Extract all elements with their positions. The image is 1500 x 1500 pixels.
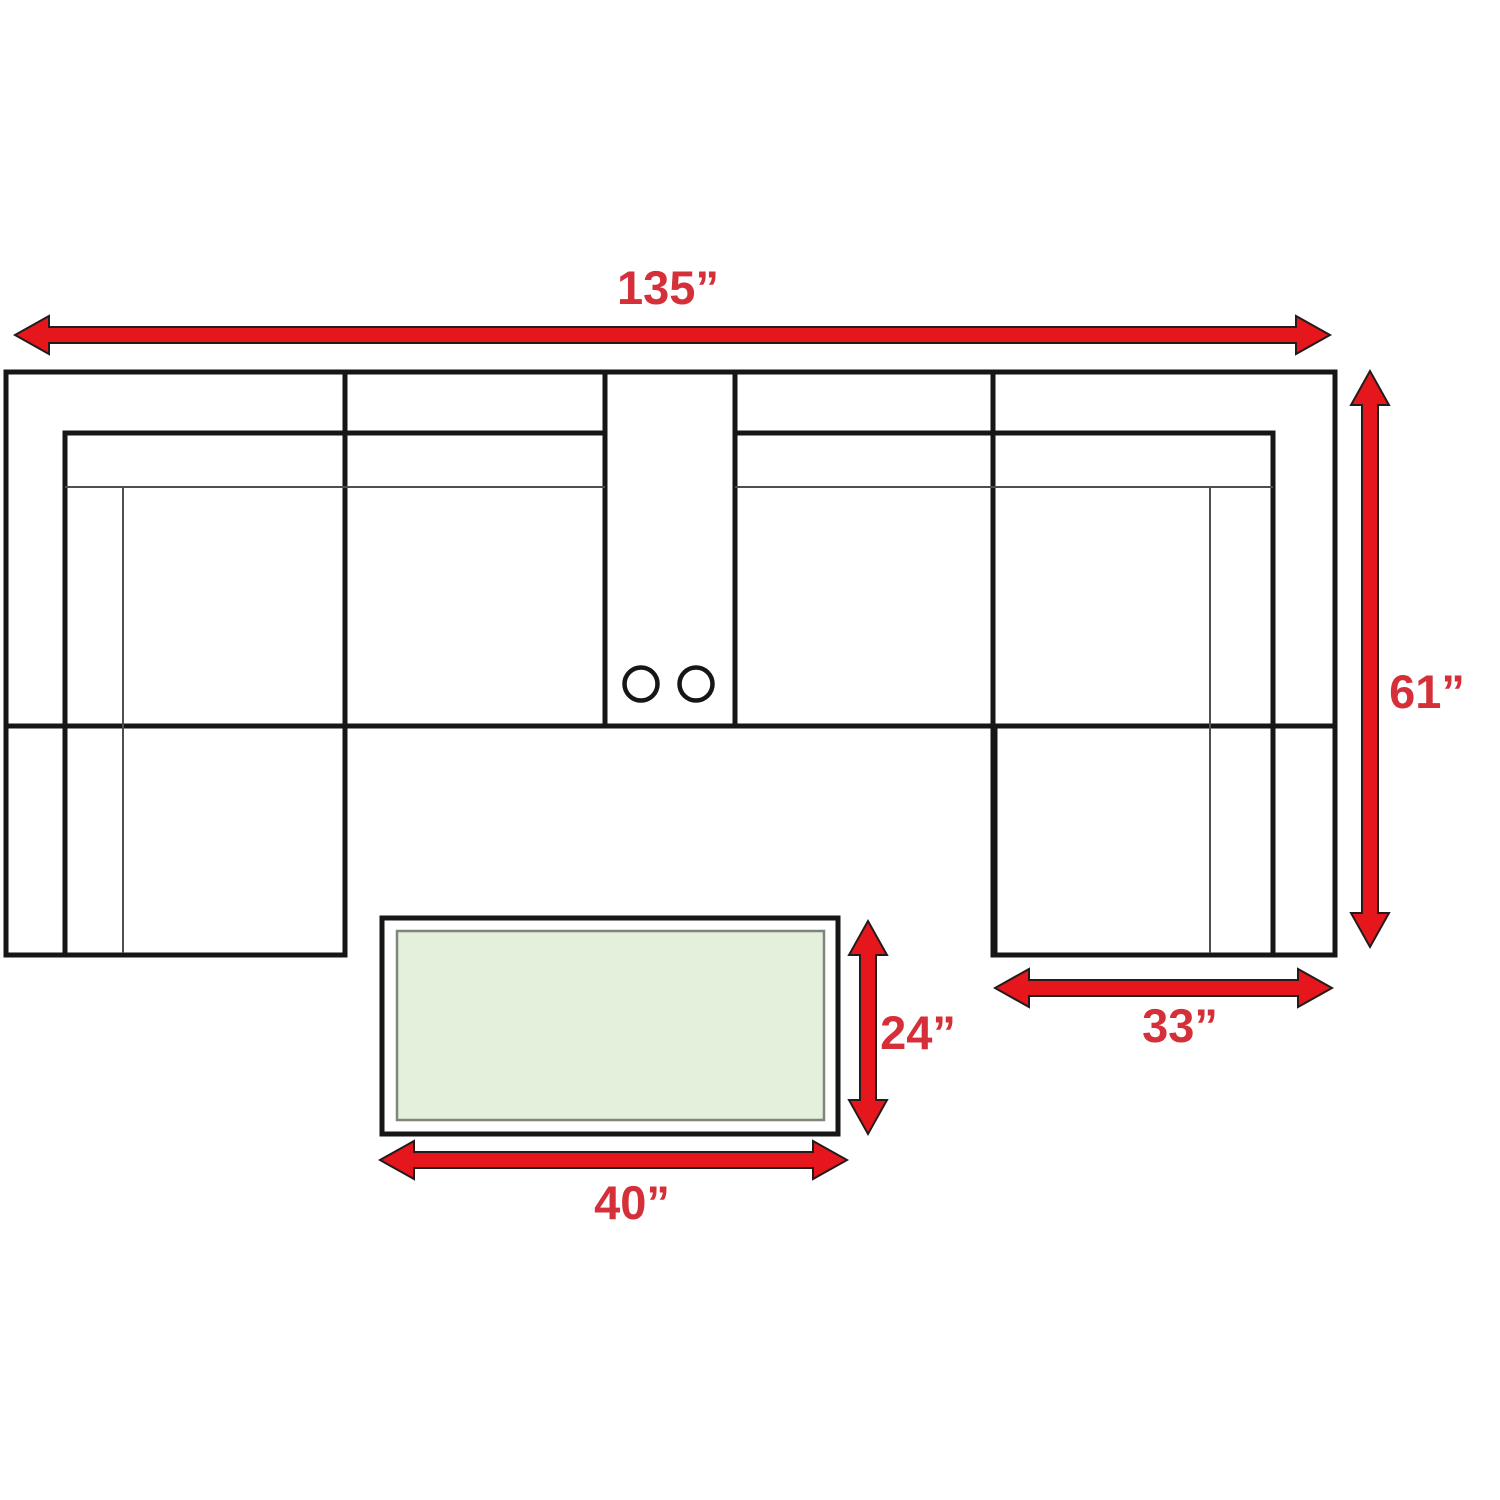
dimension-overall-depth: 61” <box>1351 371 1465 947</box>
dimension-table-width: 40” <box>380 1141 847 1229</box>
overall-width-arrow <box>15 316 1330 354</box>
overall-width-label: 135” <box>617 261 719 314</box>
overall-depth-arrow <box>1351 371 1389 947</box>
table-width-arrow <box>380 1141 847 1179</box>
dimension-table-depth: 24” <box>849 921 956 1134</box>
floor-plan-svg: 135” 61” 33” 24” 40” <box>0 0 1500 1500</box>
overall-depth-label: 61” <box>1389 665 1465 718</box>
cup-holder-left <box>625 668 658 701</box>
dimension-overall-width: 135” <box>15 261 1330 354</box>
furniture-dimension-diagram: 135” 61” 33” 24” 40” <box>0 0 1500 1500</box>
table-top-surface <box>397 931 824 1120</box>
table-depth-label: 24” <box>880 1006 956 1059</box>
sectional-sofa <box>6 372 1335 955</box>
table-width-label: 40” <box>594 1176 670 1229</box>
cup-holder-right <box>680 668 713 701</box>
sofa-outline <box>6 372 1335 955</box>
chaise-width-label: 33” <box>1142 999 1218 1052</box>
coffee-table <box>382 918 838 1134</box>
dimension-chaise-width: 33” <box>995 969 1332 1052</box>
